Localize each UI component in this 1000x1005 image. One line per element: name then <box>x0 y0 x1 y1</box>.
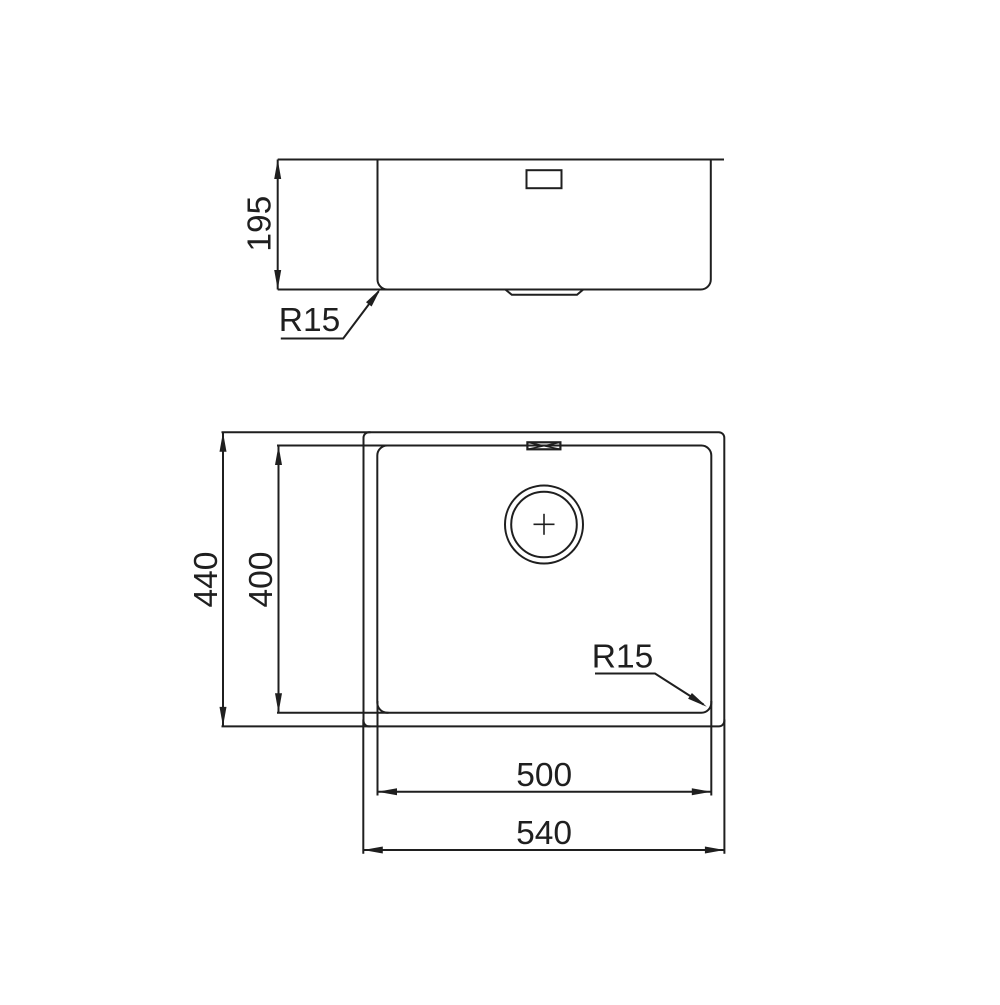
svg-text:540: 540 <box>516 815 572 852</box>
svg-text:195: 195 <box>242 196 279 252</box>
svg-text:R15: R15 <box>279 302 340 339</box>
svg-text:440: 440 <box>188 552 225 608</box>
svg-text:400: 400 <box>243 552 280 608</box>
svg-text:500: 500 <box>516 757 572 794</box>
svg-text:R15: R15 <box>592 639 653 676</box>
